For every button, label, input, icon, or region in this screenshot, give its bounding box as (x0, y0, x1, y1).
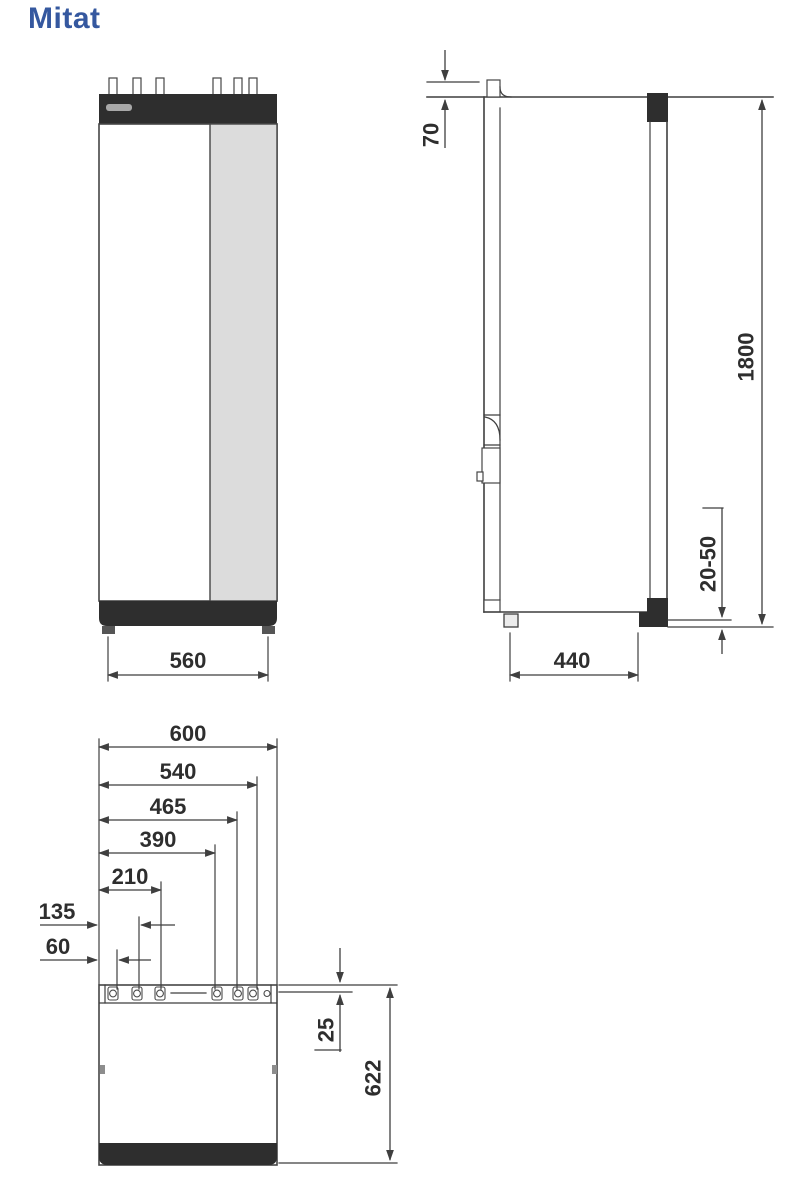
pipe-stub (133, 78, 141, 95)
top-view: 600 540 465 390 210 (39, 721, 397, 1165)
dim-label-600: 600 (170, 721, 207, 746)
dim-70: 70 (419, 50, 480, 148)
hinge-mark-left (100, 1065, 105, 1074)
dim-25: 25 (314, 948, 342, 1052)
dim-label-25: 25 (314, 1018, 339, 1042)
brand-logo (106, 104, 132, 111)
dim-label-135: 135 (39, 899, 76, 924)
front-right-strip (210, 124, 277, 601)
dim-label-622: 622 (361, 1060, 386, 1097)
dim-20-50: 20-50 (696, 508, 724, 654)
dim-440: 440 (510, 633, 638, 681)
pipe-stub (249, 78, 257, 95)
rear-foot-bracket (639, 598, 668, 627)
dim-label-465: 465 (150, 794, 187, 819)
pipe-elbow (500, 87, 511, 97)
dim-label-440: 440 (554, 648, 591, 673)
pipe-stub (213, 78, 221, 95)
pipe-stub (156, 78, 164, 95)
dim-label-70: 70 (419, 123, 444, 147)
dim-60: 60 (40, 934, 151, 989)
dim-label-210: 210 (112, 864, 149, 889)
base-notch (484, 600, 500, 612)
side-front-foot (504, 614, 518, 627)
dim-622: 622 (279, 988, 397, 1163)
dim-560: 560 (108, 637, 268, 681)
dim-label-560: 560 (170, 648, 207, 673)
front-base-panel (99, 601, 277, 626)
pipe-stub-side (487, 80, 500, 97)
pipe-stub (109, 78, 117, 95)
top-view-front-band (99, 1143, 277, 1165)
side-top-block (647, 93, 668, 122)
handle-arc (485, 417, 500, 440)
display-knob (477, 472, 483, 481)
dim-label-540: 540 (160, 759, 197, 784)
dim-label-1800: 1800 (734, 333, 759, 382)
top-view-outline (99, 985, 277, 1165)
manual-page: Mitat (0, 0, 812, 1200)
dim-210: 210 (99, 864, 161, 989)
front-foot-left (102, 626, 115, 634)
hinge-mark-right (272, 1065, 277, 1074)
display-unit (482, 448, 500, 483)
pipe-stub (234, 78, 242, 95)
front-view: 560 (99, 78, 277, 681)
pipe-stubs-top (109, 78, 257, 95)
dim-1800: 1800 (734, 100, 763, 624)
dim-label-60: 60 (46, 934, 70, 959)
dim-label-20-50: 20-50 (696, 536, 721, 592)
dim-label-390: 390 (140, 827, 177, 852)
front-foot-right (262, 626, 275, 634)
dimension-drawing: 560 (0, 0, 812, 1200)
side-view: 70 1800 20-50 440 (419, 50, 774, 681)
